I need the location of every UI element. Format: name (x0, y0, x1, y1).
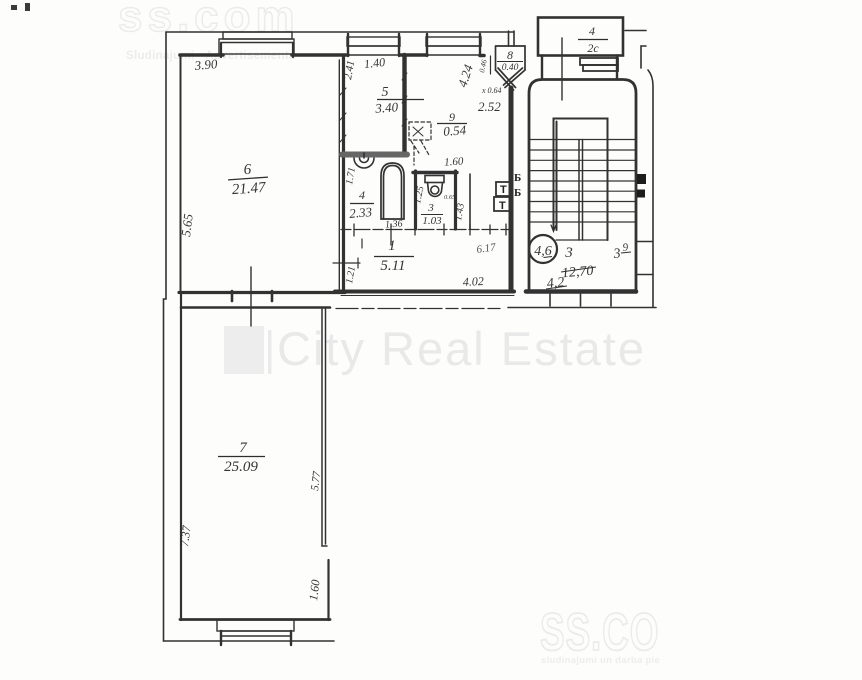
svg-text:T: T (500, 184, 507, 196)
svg-text:SS.CO: SS.CO (540, 603, 659, 662)
svg-text:1: 1 (388, 238, 396, 254)
svg-text:9: 9 (449, 110, 455, 124)
svg-text:0.46: 0.46 (477, 58, 489, 73)
svg-text:T: T (499, 200, 506, 212)
svg-text:12,70: 12,70 (561, 264, 594, 282)
svg-text:1.60: 1.60 (444, 155, 465, 168)
svg-text:5.65: 5.65 (178, 212, 196, 237)
svg-text:6.17: 6.17 (476, 241, 497, 256)
svg-text:4: 4 (359, 188, 365, 202)
svg-text:Б: Б (514, 172, 521, 184)
svg-text:4,2: 4,2 (546, 275, 565, 292)
svg-text:3: 3 (612, 246, 622, 262)
svg-text:25.09: 25.09 (224, 459, 258, 475)
svg-text:2.41: 2.41 (342, 59, 357, 80)
svg-text:5.11: 5.11 (380, 258, 405, 274)
svg-text:1.60: 1.60 (306, 579, 322, 602)
svg-text:1.03: 1.03 (422, 215, 442, 227)
svg-text:1.71: 1.71 (344, 166, 358, 185)
svg-text:4: 4 (589, 24, 595, 38)
svg-text:0.40: 0.40 (502, 63, 519, 73)
svg-text:8: 8 (507, 48, 513, 62)
svg-text:0.65: 0.65 (444, 194, 456, 201)
svg-text:3: 3 (427, 202, 434, 214)
svg-text:1.43: 1.43 (453, 202, 467, 221)
svg-text:Б: Б (514, 187, 521, 199)
svg-text:1.21: 1.21 (344, 265, 358, 284)
svg-text:7: 7 (239, 440, 248, 456)
svg-text:City Real Estate: City Real Estate (277, 322, 646, 375)
svg-text:4.02: 4.02 (462, 274, 484, 289)
svg-text:0.54: 0.54 (443, 122, 467, 139)
svg-text:6: 6 (243, 162, 252, 179)
svg-text:1.40: 1.40 (363, 55, 385, 71)
svg-text:x 0.64: x 0.64 (481, 86, 502, 95)
svg-text:3.90: 3.90 (193, 56, 218, 73)
svg-text:5.77: 5.77 (309, 470, 323, 491)
svg-text:2.33: 2.33 (349, 204, 373, 221)
svg-text:ss.com: ss.com (118, 0, 300, 41)
svg-text:2c: 2c (587, 41, 599, 55)
svg-text:21.47: 21.47 (231, 180, 267, 198)
svg-text:2.52: 2.52 (478, 99, 501, 114)
svg-text:1.25: 1.25 (412, 185, 426, 204)
svg-text:1.36: 1.36 (385, 218, 403, 230)
svg-text:sludinajumi un darba pie: sludinajumi un darba pie (541, 655, 660, 666)
svg-text:4.24: 4.24 (455, 62, 476, 89)
svg-text:3: 3 (564, 245, 573, 261)
svg-text:5: 5 (382, 85, 389, 100)
svg-text:3.40: 3.40 (374, 99, 399, 116)
svg-text:7.37: 7.37 (177, 524, 194, 548)
